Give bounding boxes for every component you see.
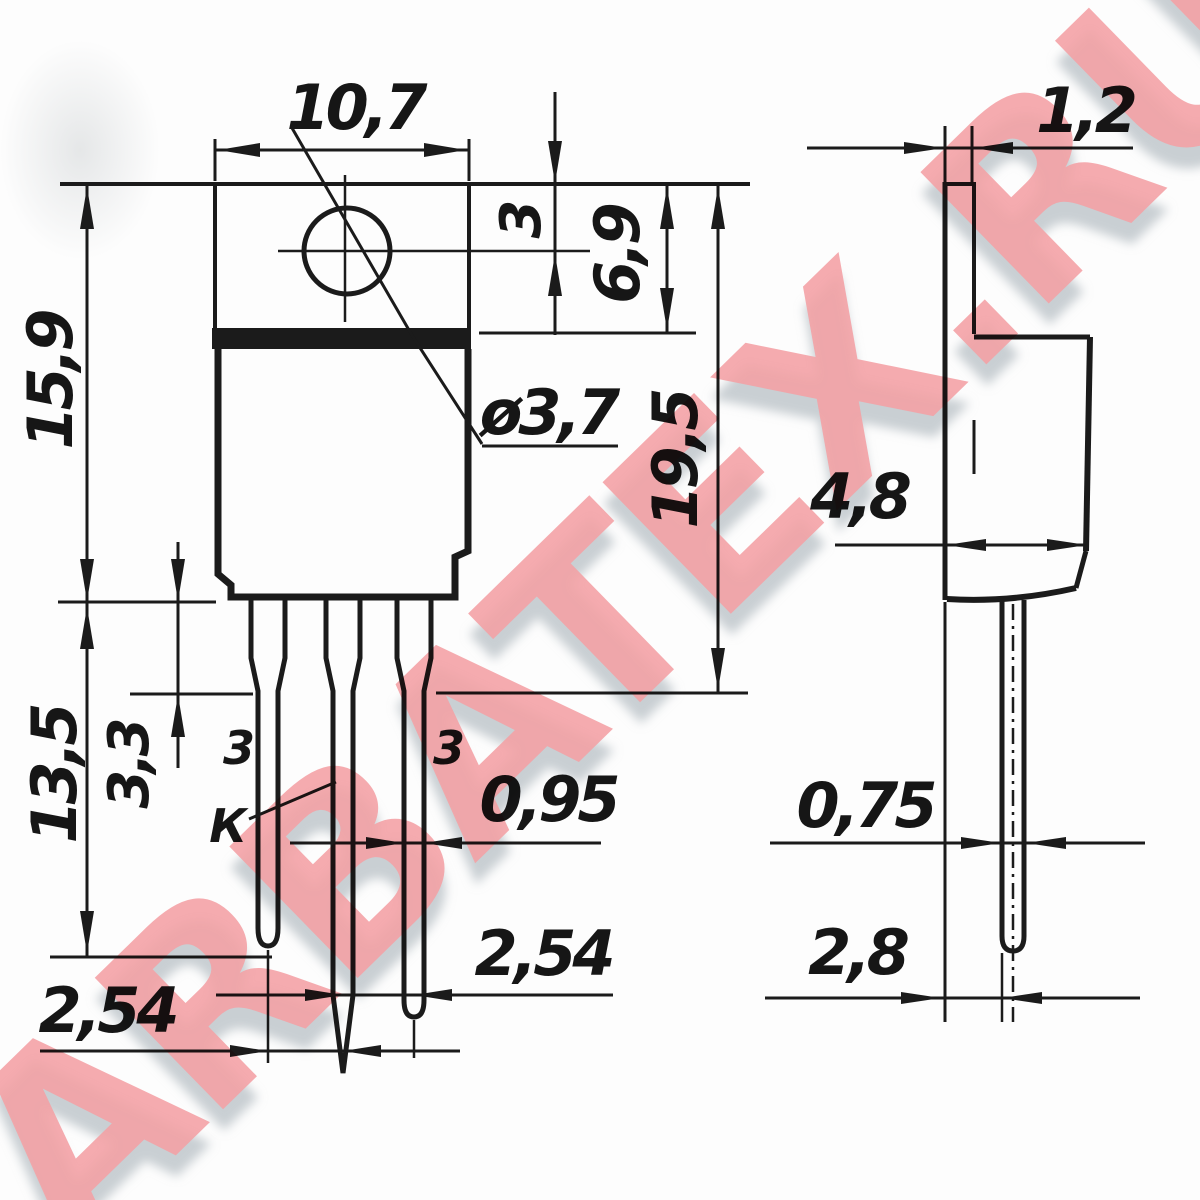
lead-label-right: 3: [433, 725, 463, 771]
dim-label-lead-length: 13,5: [24, 707, 86, 844]
lead-left: [251, 599, 285, 946]
arrow-holeoffset-bottom: [548, 254, 562, 296]
arrow-bodyheight-top: [80, 187, 94, 229]
dim-label-body-height: 15,9: [20, 313, 82, 450]
dim-label-lead-shoulder: 3,3: [102, 721, 158, 808]
dim-label-hole-diameter: ø3,7: [480, 382, 616, 444]
plastic-body-outline: [218, 349, 468, 597]
arrow-bodythickness-right: [1047, 539, 1087, 551]
lead-label-middle-k: К: [209, 803, 245, 849]
lead-k-leader-line: [249, 782, 336, 819]
side-dimension-lines: [765, 126, 1145, 1022]
side-view: [765, 126, 1145, 1022]
tab-body-boundary-bar: [212, 328, 471, 349]
dim-label-pitch-right: 2,54: [475, 923, 612, 985]
dim-label-tab-thickness: 1,2: [1036, 80, 1134, 142]
arrow-leadthickness-right: [1026, 837, 1066, 849]
arrow-shoulder-bottom: [171, 695, 185, 737]
arrow-shoulder-top: [171, 559, 185, 601]
dim-label-body-width: 10,7: [287, 77, 424, 139]
dim-label-body-thickness: 4,8: [810, 466, 908, 528]
arrow-leadoffset-left: [901, 992, 941, 1004]
front-package-outline: [212, 128, 618, 597]
dim-label-pitch-left: 2,54: [39, 980, 176, 1042]
arrow-pitchright-right: [414, 989, 452, 1001]
lead-right: [397, 599, 431, 1017]
arrow-pitchright-left: [305, 989, 343, 1001]
arrow-leadlength-top: [80, 607, 94, 649]
arrow-leadthickness-left: [961, 837, 1001, 849]
front-leads: [249, 599, 431, 1073]
arrow-width-right: [424, 143, 466, 157]
dim-label-tab-height: 6,9: [587, 206, 649, 304]
dim-label-hole-offset: 3: [494, 204, 550, 239]
arrow-bodythickness-left: [946, 539, 986, 551]
drawing-linework: [0, 0, 1200, 1200]
lead-label-left: 3: [223, 725, 253, 771]
arrow-leadoffset-right: [1002, 992, 1042, 1004]
arrow-tabheight-bottom: [660, 288, 674, 330]
arrow-leadlength-bottom: [80, 911, 94, 953]
side-body-bottom-edge: [947, 588, 1076, 600]
technical-drawing-page: 10,7 15,9 13,5 3,3 3 6,9 19,5 ø3,7 0,95 …: [0, 0, 1200, 1200]
lead-middle: [326, 599, 360, 1073]
side-body-back-edge: [1086, 337, 1090, 551]
arrow-leadwidth-right: [424, 837, 462, 849]
dim-label-lead-offset: 2,8: [808, 922, 906, 984]
dim-label-lead-width: 0,95: [480, 769, 617, 831]
arrow-tabheight-top: [660, 187, 674, 229]
arrow-tabthickness-right: [973, 142, 1013, 154]
side-arrowheads: [901, 142, 1087, 1004]
arrow-pitchleft-left: [230, 1045, 268, 1057]
side-package-outline: [944, 182, 1090, 1022]
dim-label-overall-height: 19,5: [645, 392, 707, 529]
dim-label-lead-thickness: 0,75: [797, 775, 934, 837]
arrow-overall-top: [711, 187, 725, 229]
side-body-chamfer: [1076, 551, 1086, 588]
arrow-holeoffset-top: [548, 141, 562, 183]
arrow-leadwidth-left: [366, 837, 404, 849]
arrow-overall-bottom: [711, 648, 725, 690]
arrow-tabthickness-left: [904, 142, 944, 154]
arrow-width-left: [218, 143, 260, 157]
arrow-bodyheight-bottom: [80, 559, 94, 601]
